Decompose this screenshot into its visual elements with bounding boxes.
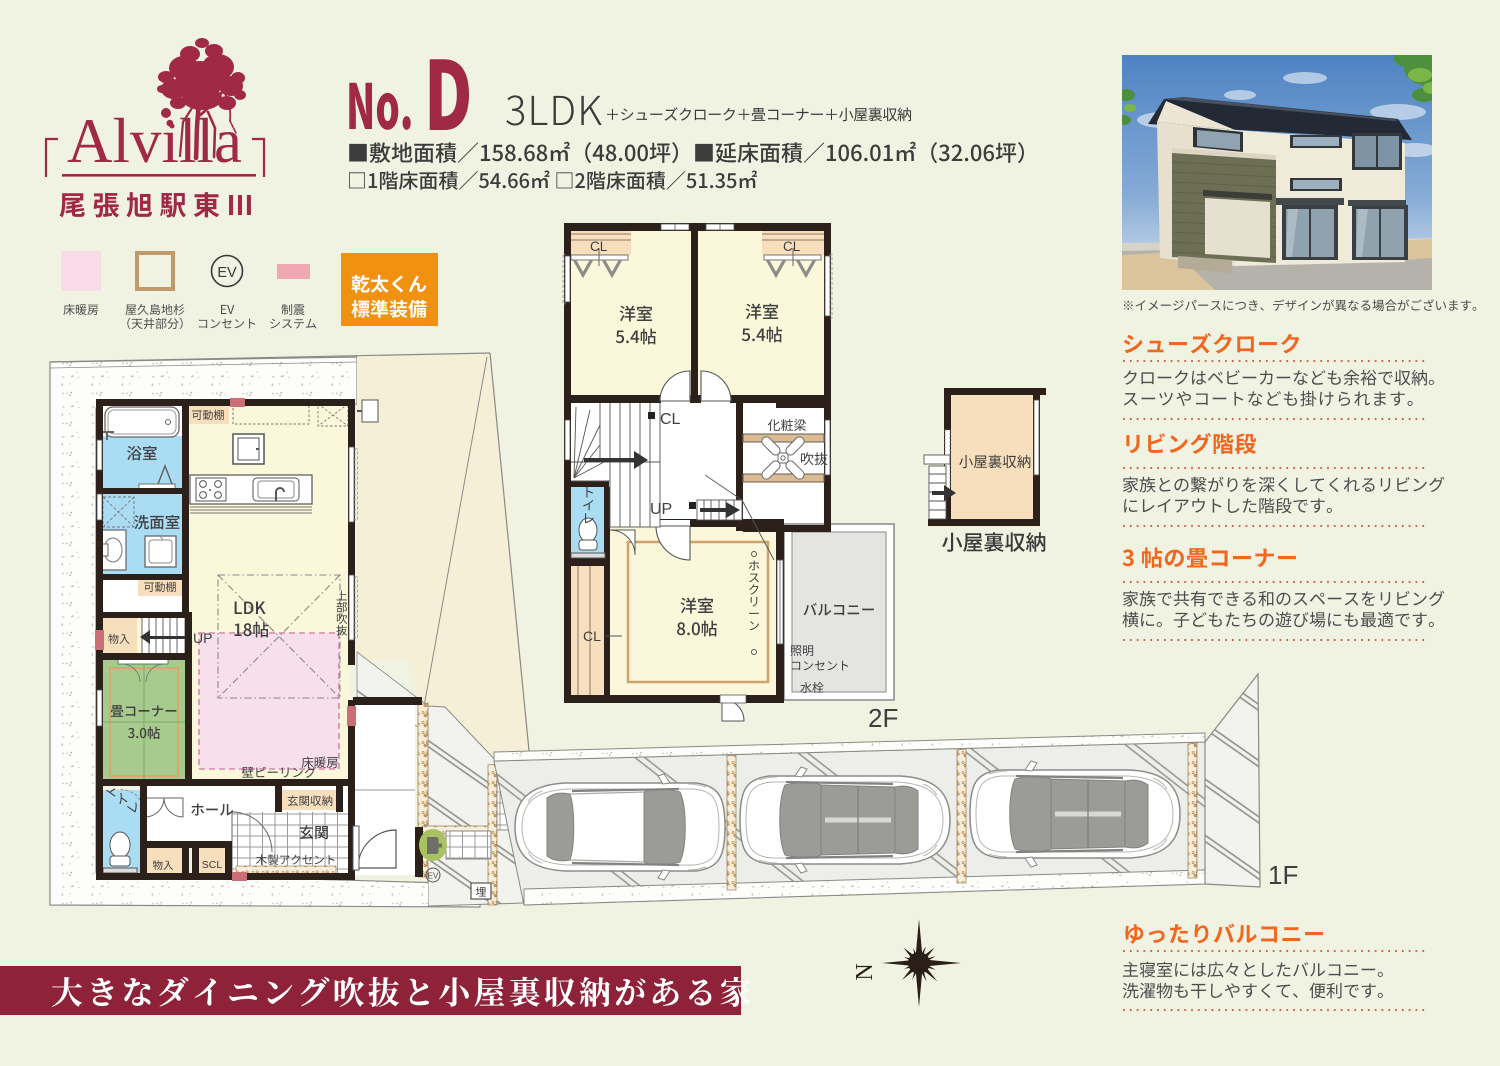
svg-text:N: N <box>852 963 878 980</box>
svg-text:SCL: SCL <box>202 859 223 871</box>
svg-text:UP: UP <box>650 501 672 518</box>
svg-text:EV: EV <box>217 265 237 281</box>
svg-text:CL: CL <box>583 628 601 644</box>
svg-text:Alvilla: Alvilla <box>67 106 242 176</box>
svg-text:CL: CL <box>590 239 608 254</box>
svg-text:CL: CL <box>783 239 801 254</box>
svg-text:CL: CL <box>660 411 681 428</box>
svg-text:2F: 2F <box>868 703 898 733</box>
svg-text:UP: UP <box>193 630 212 646</box>
svg-text:EV: EV <box>428 872 439 881</box>
svg-text:1F: 1F <box>1268 860 1298 890</box>
